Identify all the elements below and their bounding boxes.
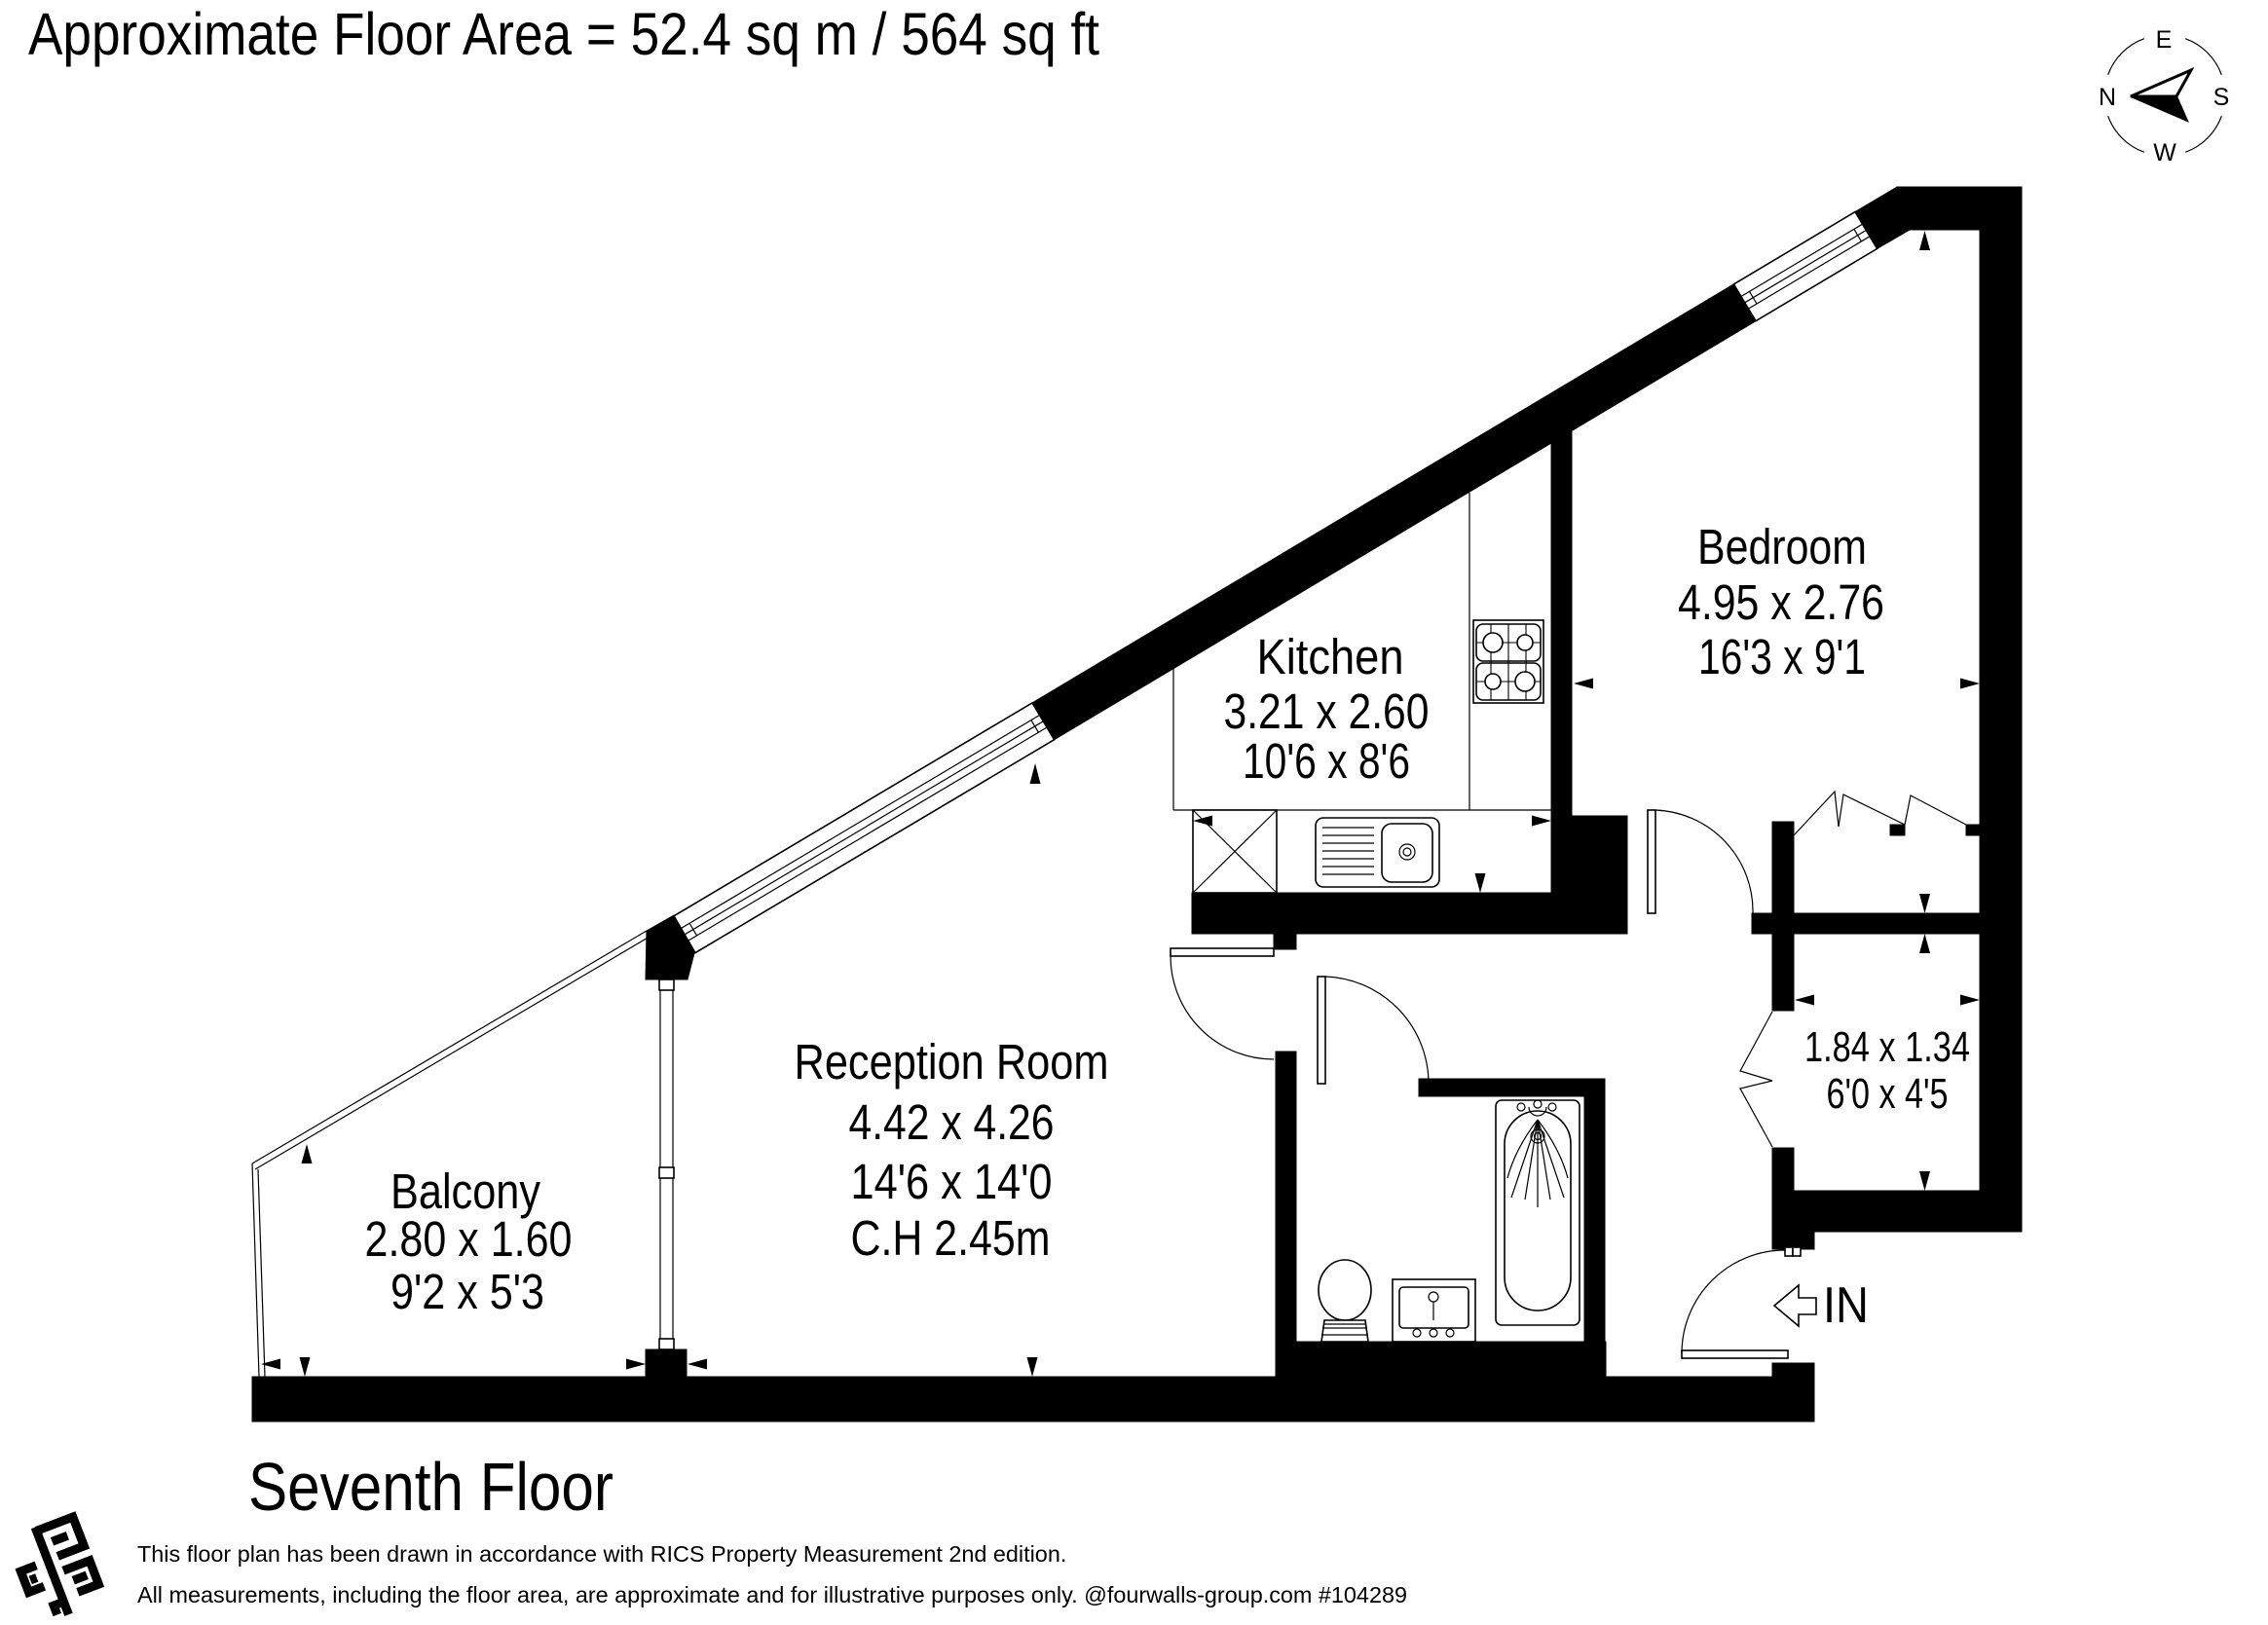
svg-text:Approximate Floor Area = 52.4: Approximate Floor Area = 52.4 sq m / 564… — [28, 1, 1099, 67]
svg-text:16'3 x 9'1: 16'3 x 9'1 — [1698, 629, 1866, 684]
svg-text:Bedroom: Bedroom — [1697, 519, 1867, 574]
svg-text:W: W — [2153, 139, 2176, 166]
svg-text:10'6 x 8'6: 10'6 x 8'6 — [1243, 733, 1410, 789]
svg-text:S: S — [2213, 84, 2230, 111]
svg-text:This floor plan has been drawn: This floor plan has been drawn in accord… — [137, 1541, 1066, 1567]
svg-text:4.95 x 2.76: 4.95 x 2.76 — [1678, 574, 1884, 630]
svg-text:3.21 x 2.60: 3.21 x 2.60 — [1224, 683, 1430, 739]
svg-text:E: E — [2156, 26, 2173, 54]
svg-text:2.80 x 1.60: 2.80 x 1.60 — [365, 1211, 573, 1267]
svg-text:Seventh Floor: Seventh Floor — [248, 1449, 613, 1525]
svg-text:All measurements, including th: All measurements, including the floor ar… — [137, 1582, 1407, 1607]
svg-text:N: N — [2099, 84, 2116, 111]
svg-text:9'2 x 5'3: 9'2 x 5'3 — [390, 1264, 544, 1319]
svg-text:C.H 2.45m: C.H 2.45m — [851, 1210, 1051, 1266]
svg-text:4.42 x 4.26: 4.42 x 4.26 — [849, 1094, 1055, 1150]
svg-text:Reception Room: Reception Room — [795, 1034, 1109, 1089]
svg-text:14'6 x 14'0: 14'6 x 14'0 — [851, 1154, 1053, 1209]
svg-text:Kitchen: Kitchen — [1257, 629, 1404, 684]
svg-text:1.84 x 1.34: 1.84 x 1.34 — [1804, 1023, 1970, 1071]
svg-text:IN: IN — [1823, 1277, 1869, 1334]
svg-text:6'0 x 4'5: 6'0 x 4'5 — [1827, 1070, 1949, 1118]
